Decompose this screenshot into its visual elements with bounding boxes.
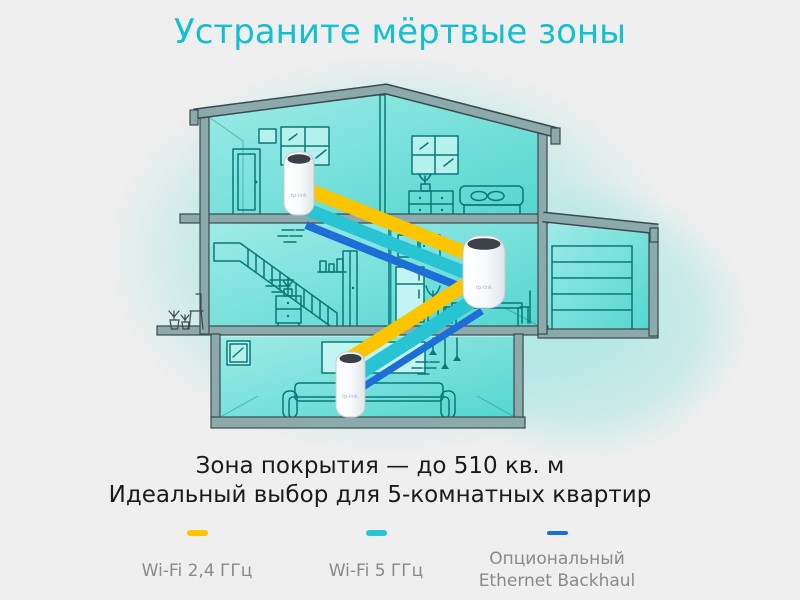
legend-label: Wi-Fi 5 ГГц (276, 560, 476, 582)
ground-left-wall (211, 334, 220, 417)
device-brand-label: tp-link (291, 193, 307, 199)
small-wall-frame (259, 129, 276, 143)
device-brand-label: tp-link (342, 394, 358, 400)
page-title: Устраните мёртвые зоны (0, 12, 800, 52)
ethernet-dash-icon (547, 531, 568, 535)
picture-frame (227, 341, 250, 365)
legend-item-wifi-5: Wi-Fi 5 ГГц (276, 530, 476, 582)
bedroom-window (412, 136, 458, 174)
ground-right-wall (514, 334, 523, 417)
legend-label: Опциональный Ethernet Backhaul (472, 548, 642, 592)
mesh-device-middle: tp-link (463, 236, 505, 308)
device-brand-label: tp-link (476, 285, 492, 291)
wifi-5-dash-icon (366, 530, 387, 536)
coverage-line-2: Идеальный выбор для 5-комнатных квартир (0, 481, 780, 510)
promo-banner: tp-link tp-link tp-link Устраните мёртвы… (0, 0, 800, 600)
wifi-24-dash-icon (187, 530, 208, 536)
coverage-text: Зона покрытия — до 510 кв. м Идеальный в… (0, 452, 780, 510)
legend-label: Wi-Fi 2,4 ГГц (97, 560, 297, 582)
garage-right-wall (649, 228, 658, 336)
main-right-wall (538, 129, 547, 334)
coverage-line-1: Зона покрытия — до 510 кв. м (0, 452, 780, 481)
garage-fill (547, 224, 649, 329)
legend-item-ethernet: Опциональный Ethernet Backhaul (472, 530, 642, 592)
foundation (211, 417, 525, 428)
house-illustration: tp-link tp-link tp-link (0, 0, 800, 600)
mesh-device-ground: tp-link (336, 352, 365, 417)
garage-floor (538, 329, 658, 338)
legend-item-wifi-24: Wi-Fi 2,4 ГГц (97, 530, 297, 582)
mesh-device-attic: tp-link (284, 152, 314, 215)
